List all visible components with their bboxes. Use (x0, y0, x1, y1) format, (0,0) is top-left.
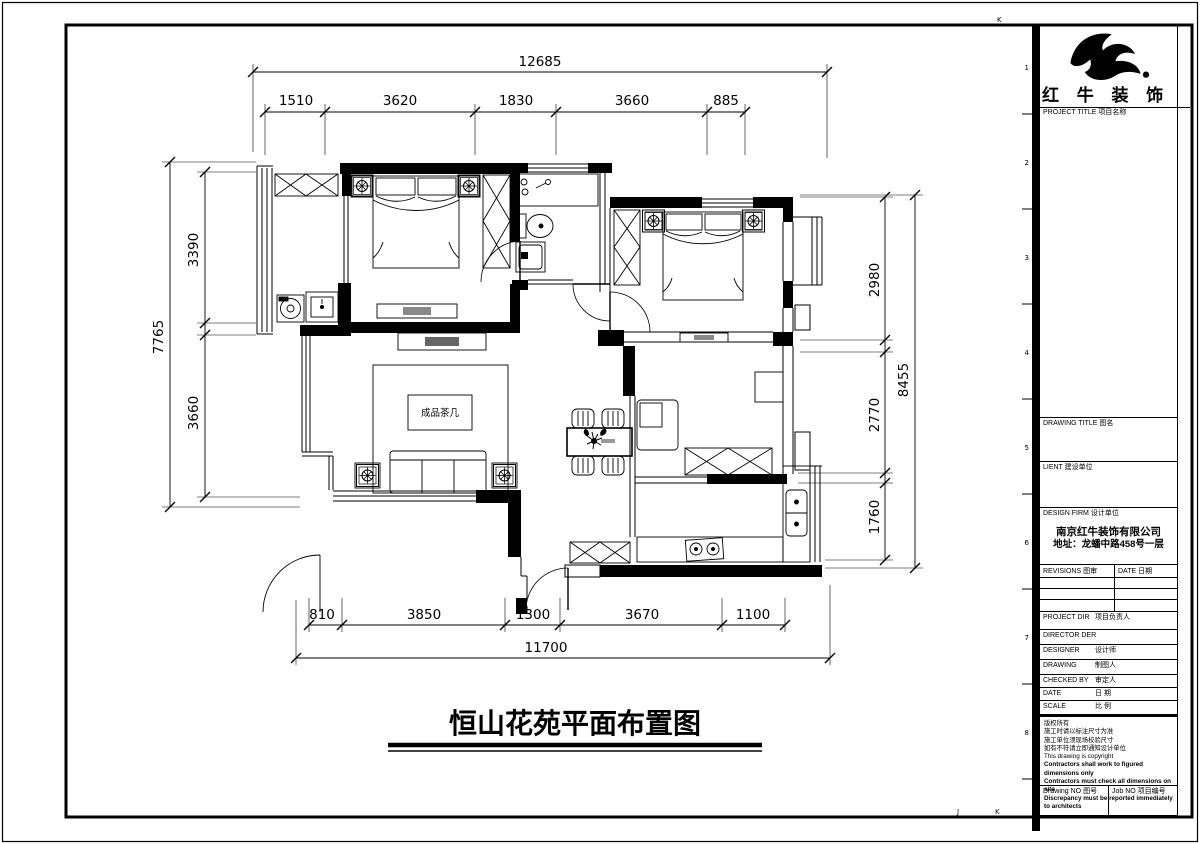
drawing-no-row: Drawing NO 图号 Job NO 项目编号 (1040, 786, 1177, 817)
svg-text:1760: 1760 (867, 500, 883, 534)
svg-text:K: K (997, 16, 1002, 24)
bedroom2-bed (663, 212, 743, 300)
svg-text:1300: 1300 (516, 607, 550, 623)
furniture (275, 174, 810, 563)
washing-machine (277, 295, 304, 322)
floor-plan-canvas: K J K 1 2 3 4 5 6 7 8 (0, 0, 1200, 844)
drawing-sheet: { "title": { "text": "恒山花苑平面布置图" }, "pla… (0, 0, 1200, 844)
bull-logo-icon (1062, 27, 1158, 81)
svg-text:3660: 3660 (186, 396, 202, 430)
dim-left-chain: 3390 3660 (186, 167, 300, 502)
svg-text:3850: 3850 (407, 607, 441, 623)
toilet (518, 214, 553, 238)
kitchen-stove (685, 538, 723, 562)
svg-text:4: 4 (1025, 349, 1030, 357)
brand-name: 红 牛 装 饰 (1042, 81, 1188, 106)
entry-door (526, 568, 568, 610)
study-desk (755, 372, 783, 402)
svg-text:2: 2 (1025, 159, 1029, 167)
drawing-title-section: DRAWING TITLE 图名 (1040, 418, 1177, 462)
sofa (390, 451, 486, 493)
svg-text:5: 5 (1025, 444, 1029, 452)
dining-table (567, 428, 632, 456)
tea-table (408, 395, 472, 430)
kitchen-counter (637, 466, 810, 562)
dim-bottom-chain: 810 3850 1300 3670 1100 (304, 598, 790, 632)
bath-counter (516, 174, 598, 206)
svg-text:8: 8 (1025, 729, 1029, 737)
checked-by-row: CHECKED BY审定人 (1040, 675, 1177, 688)
svg-text:7: 7 (1025, 634, 1029, 642)
sheet-grid-marks: K J K 1 2 3 4 5 6 7 8 (956, 16, 1032, 816)
svg-text:6: 6 (1025, 539, 1030, 547)
master-wardrobe (483, 175, 510, 268)
drawing-no-cell: Drawing NO 图号 (1040, 786, 1108, 815)
master-nightstand-left (352, 176, 372, 196)
notes-block: 版权所有 施工时请以标注尺寸为准 施工单位须现场校验尺寸 如有不符请立即通知设计… (1040, 716, 1177, 786)
project-title-section: PROJECT TITLE 项目名称 (1040, 107, 1177, 418)
dim-right-total: 8455 (800, 190, 923, 573)
svg-text:3660: 3660 (615, 93, 649, 109)
balcony-cabinet (275, 174, 338, 196)
svg-text:8455: 8455 (896, 363, 912, 397)
bedroom2-wardrobe (614, 210, 640, 285)
dining-chairs (572, 409, 624, 475)
revisions-label: REVISIONS 图审 (1043, 567, 1097, 576)
svg-text:1830: 1830 (499, 93, 533, 109)
brand-logo-area: 红 牛 装 饰 (1040, 25, 1190, 108)
master-bed (373, 176, 459, 268)
svg-text:K: K (995, 808, 1000, 816)
titleblock-divider-bar (1032, 25, 1040, 831)
dim-top-total: 12685 (248, 54, 832, 158)
dim-bottom-total: 11700 (291, 585, 835, 665)
dim-right-chain: 2980 2770 1760 (798, 192, 893, 565)
svg-text:3620: 3620 (383, 93, 417, 109)
svg-text:3: 3 (1025, 254, 1029, 262)
firm-name: 南京红牛装饰有限公司 (1043, 528, 1174, 537)
bedroom2-door (610, 292, 650, 332)
svg-text:2980: 2980 (867, 263, 883, 297)
scale-row: SCALE比 例 (1040, 701, 1177, 716)
balcony-sink (306, 292, 338, 322)
title-block: 红 牛 装 饰 PROJECT TITLE 项目名称 DRAWING TITLE… (1040, 25, 1178, 817)
director-row: DIRECTOR DER (1040, 630, 1177, 645)
bed2-nightstand-left (645, 212, 662, 230)
tea-table-label: 成品茶几 (421, 407, 460, 419)
svg-text:1100: 1100 (736, 607, 770, 623)
master-tv-cabinet (377, 304, 457, 318)
drawing-title: 恒山花苑平面布置图 (388, 707, 762, 751)
doors (481, 241, 650, 610)
date-row: DATE日 期 (1040, 688, 1177, 701)
living-rug (373, 365, 508, 493)
study-cabinet (685, 448, 772, 475)
bed2-nightstand-right (745, 212, 762, 230)
bedroom2-tv-shelf (680, 333, 728, 342)
shoe-cabinet (570, 542, 630, 563)
dim-top-chain: 1510 3620 1830 3660 885 (260, 93, 750, 155)
dim-left-total: 7765 (151, 157, 300, 512)
sofa-side-table-right (492, 463, 517, 488)
designer-row: DESIGNER设计师 (1040, 645, 1177, 660)
project-dir-row: PROJECT DIR项目负责人 (1040, 612, 1177, 630)
svg-text:11700: 11700 (525, 640, 568, 656)
client-section: LIENT 建设单位 (1040, 462, 1177, 508)
svg-text:3670: 3670 (625, 607, 659, 623)
svg-text:885: 885 (713, 93, 739, 109)
revisions-table: REVISIONS 图审 DATE 日期 (1040, 565, 1177, 612)
svg-text:12685: 12685 (519, 54, 562, 70)
date-col-label: DATE 日期 (1118, 567, 1152, 576)
svg-text:3390: 3390 (186, 233, 202, 267)
page-title: 恒山花苑平面布置图 (449, 707, 701, 740)
table-stamp (584, 429, 615, 449)
shower-basin (516, 242, 545, 272)
sheet-border (3, 3, 1198, 842)
svg-text:1: 1 (1025, 64, 1029, 72)
drawing-row: DRAWING制图人 (1040, 660, 1177, 675)
job-no-cell: Job NO 项目编号 (1108, 786, 1177, 815)
master-nightstand-right (459, 176, 479, 196)
kitchen-sink (786, 490, 807, 536)
bathroom-door (573, 284, 610, 321)
study-daybed (637, 400, 678, 450)
firm-address: 地址：龙蟠中路458号一层 (1043, 539, 1174, 551)
sofa-side-table-left (355, 463, 380, 488)
svg-text:1510: 1510 (279, 93, 313, 109)
windows-thin-walls (257, 164, 822, 614)
master-door (481, 241, 520, 282)
svg-text:2770: 2770 (867, 398, 883, 432)
svg-text:7765: 7765 (151, 320, 167, 354)
svg-text:J: J (956, 808, 959, 816)
design-firm-section: DESIGN FIRM 设计单位 南京红牛装饰有限公司 地址：龙蟠中路458号一… (1040, 508, 1177, 565)
walls (300, 163, 822, 614)
dimensions: 12685 1510 3620 1830 3660 885 810 3850 1… (151, 54, 923, 665)
living-tv-cabinet (398, 333, 486, 350)
svg-text:810: 810 (309, 607, 335, 623)
